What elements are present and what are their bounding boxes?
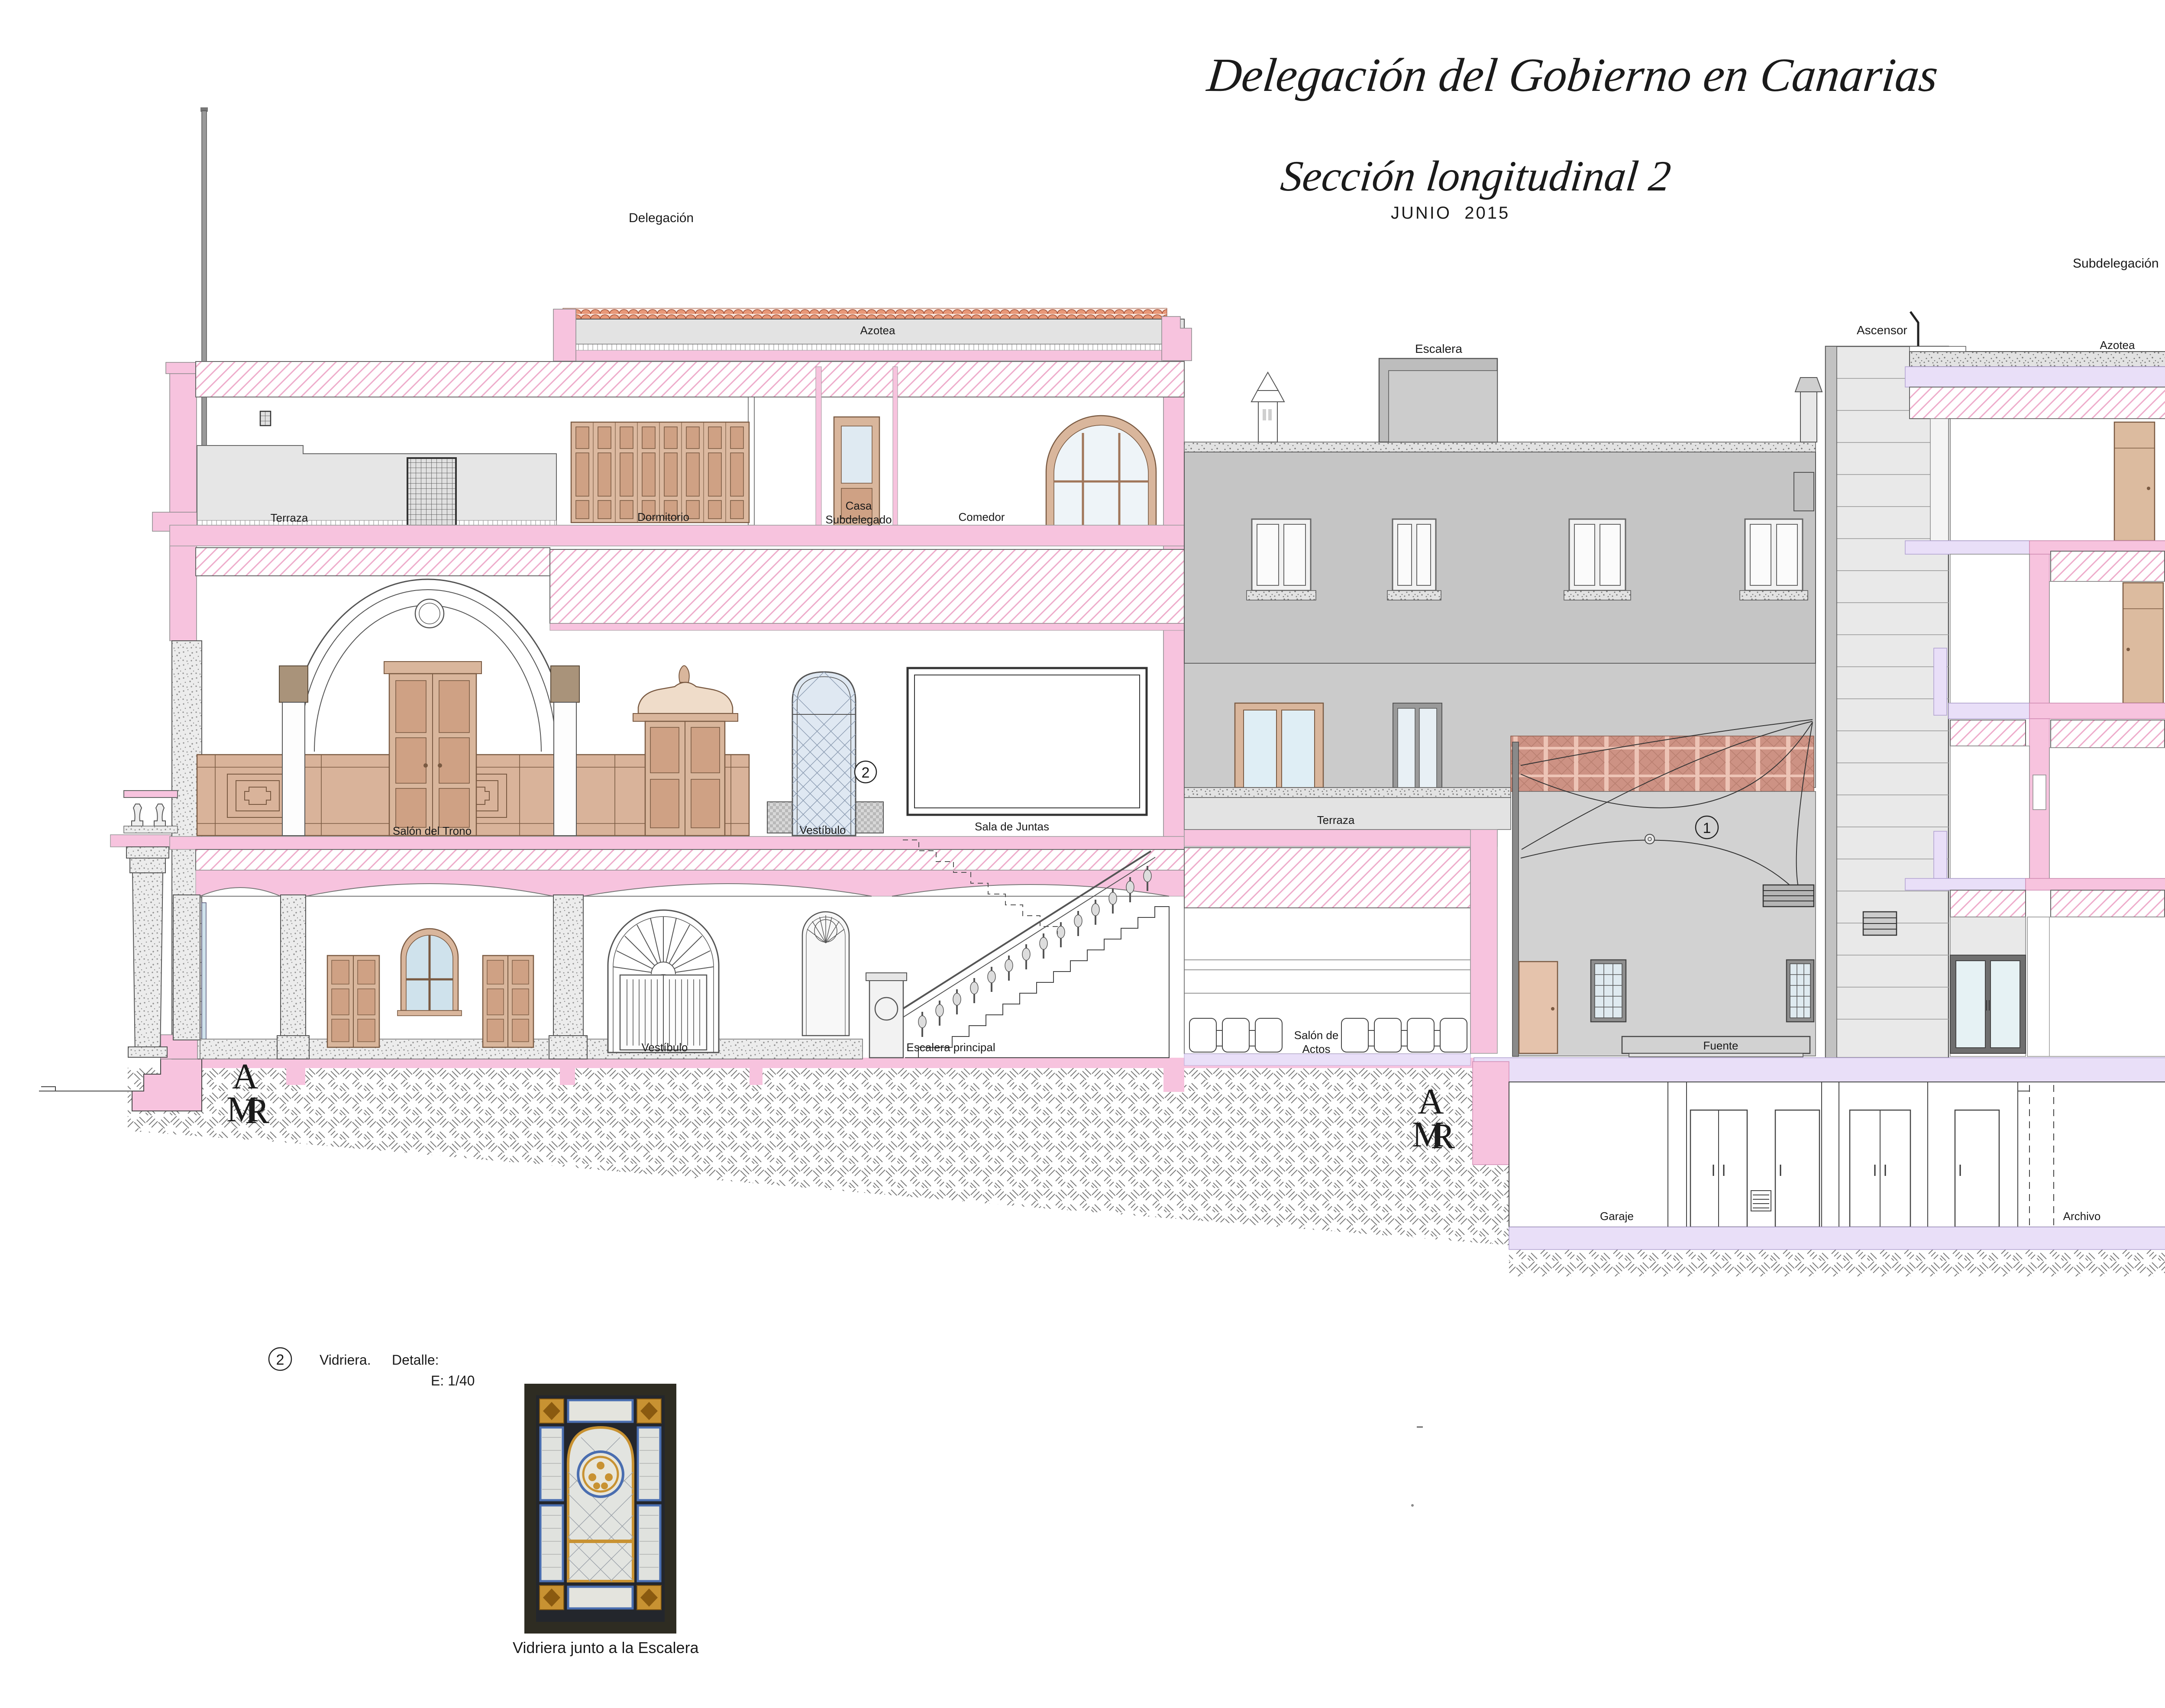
svg-text:Delegación: Delegación bbox=[629, 211, 694, 225]
svg-text:R: R bbox=[1431, 1116, 1455, 1156]
svg-text:Subdelegado: Subdelegado bbox=[825, 513, 892, 526]
svg-text:Comedor: Comedor bbox=[959, 510, 1005, 523]
svg-text:Delegación del Gobierno en Can: Delegación del Gobierno en Canarias bbox=[1204, 48, 1940, 101]
svg-text:Vidriera junto a la Escalera: Vidriera junto a la Escalera bbox=[513, 1639, 699, 1656]
svg-text:Vestíbulo: Vestíbulo bbox=[800, 823, 846, 836]
svg-text:E: 1/40: E: 1/40 bbox=[431, 1373, 475, 1388]
svg-text:2: 2 bbox=[276, 1352, 284, 1368]
svg-text:Salón de: Salón de bbox=[1294, 1029, 1339, 1042]
svg-text:Archivo: Archivo bbox=[2063, 1210, 2101, 1223]
svg-text:Sala de Juntas: Sala de Juntas bbox=[975, 820, 1049, 833]
svg-text:Terraza: Terraza bbox=[1317, 814, 1355, 827]
svg-text:Escalera: Escalera bbox=[1415, 342, 1462, 355]
svg-text:2: 2 bbox=[862, 765, 870, 781]
svg-text:Terraza: Terraza bbox=[271, 511, 308, 524]
svg-text:JUNIO 2015: JUNIO 2015 bbox=[1391, 203, 1510, 223]
svg-text:Salón del Trono: Salón del Trono bbox=[393, 824, 472, 837]
svg-text:R: R bbox=[245, 1091, 269, 1131]
svg-text:Dormitorio: Dormitorio bbox=[637, 510, 689, 523]
svg-text:1: 1 bbox=[1703, 820, 1711, 836]
svg-text:Fuente: Fuente bbox=[1703, 1039, 1738, 1052]
svg-text:Escalera principal: Escalera principal bbox=[906, 1041, 995, 1054]
svg-text:Azotea: Azotea bbox=[860, 324, 895, 337]
svg-text:Detalle:: Detalle: bbox=[392, 1352, 439, 1368]
svg-text:Vidriera.: Vidriera. bbox=[320, 1352, 371, 1368]
svg-text:Ascensor: Ascensor bbox=[1857, 323, 1907, 337]
svg-text:Casa: Casa bbox=[846, 499, 872, 512]
svg-text:Sección longitudinal 2: Sección longitudinal 2 bbox=[1279, 152, 1673, 200]
svg-text:Azotea: Azotea bbox=[2100, 339, 2135, 352]
svg-text:Subdelegación: Subdelegación bbox=[2073, 256, 2159, 271]
svg-text:Vestíbulo: Vestíbulo bbox=[642, 1041, 688, 1054]
svg-text:Garaje: Garaje bbox=[1600, 1210, 1634, 1223]
